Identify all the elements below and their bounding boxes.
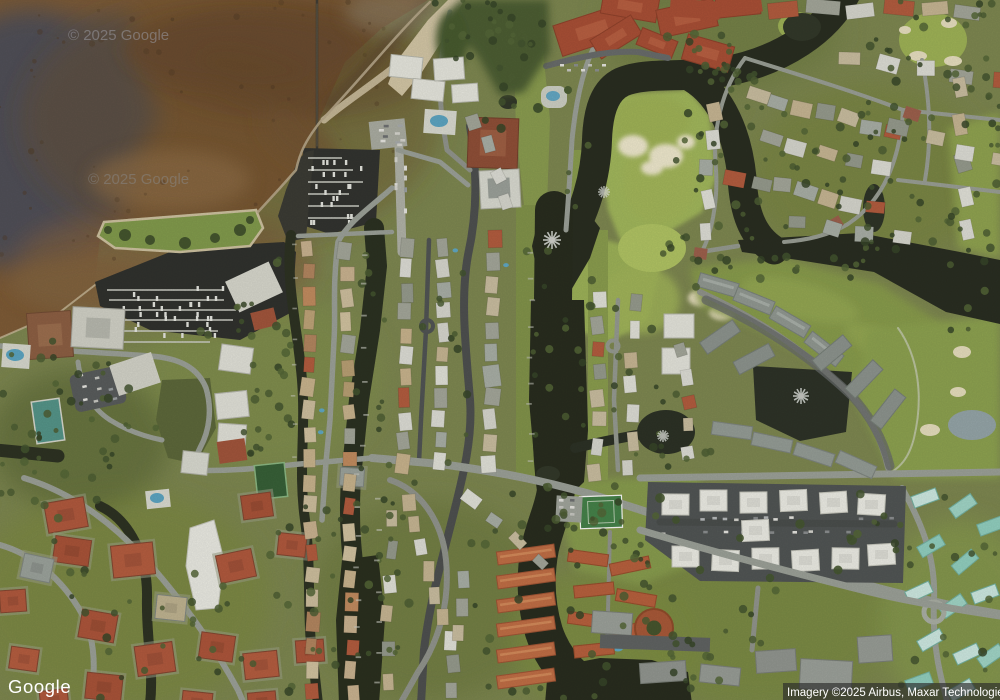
svg-text:Google: Google: [8, 676, 71, 697]
svg-text:© 2025 Google: © 2025 Google: [68, 27, 169, 44]
svg-text:Imagery ©2025 Airbus, Maxar Te: Imagery ©2025 Airbus, Maxar Technologies: [787, 687, 1000, 699]
svg-text:© 2025 Google: © 2025 Google: [88, 171, 189, 188]
